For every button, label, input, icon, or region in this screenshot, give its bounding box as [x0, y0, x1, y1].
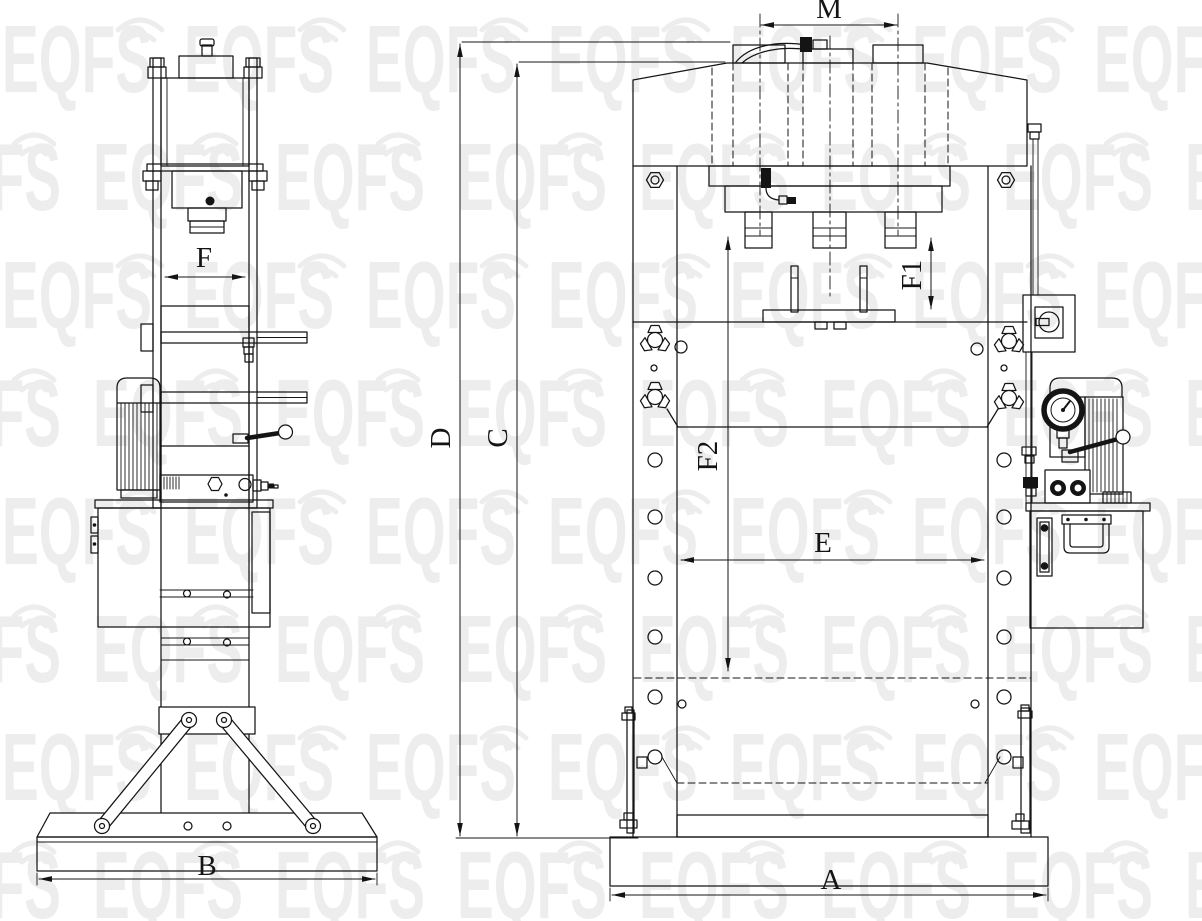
- base-flange: [37, 813, 377, 837]
- dim-E-label: E: [814, 527, 832, 559]
- dim-F2-label: F2: [692, 441, 724, 472]
- dim-C-label: C: [482, 428, 514, 447]
- dim-M-label: M: [816, 0, 842, 25]
- dim-B-label: B: [197, 850, 216, 882]
- dim-A-label: A: [821, 864, 842, 896]
- dim-F-label: F: [196, 242, 212, 274]
- pump-lever-knob: [1116, 430, 1130, 444]
- technical-drawing: EQFS EQFS EQFS: [0, 0, 1202, 921]
- dim-D-label: D: [425, 428, 457, 449]
- watermark-background: [0, 0, 1202, 921]
- dim-F1-label: F1: [896, 260, 928, 291]
- drawing-canvas: EQFS EQFS EQFS: [0, 0, 1202, 921]
